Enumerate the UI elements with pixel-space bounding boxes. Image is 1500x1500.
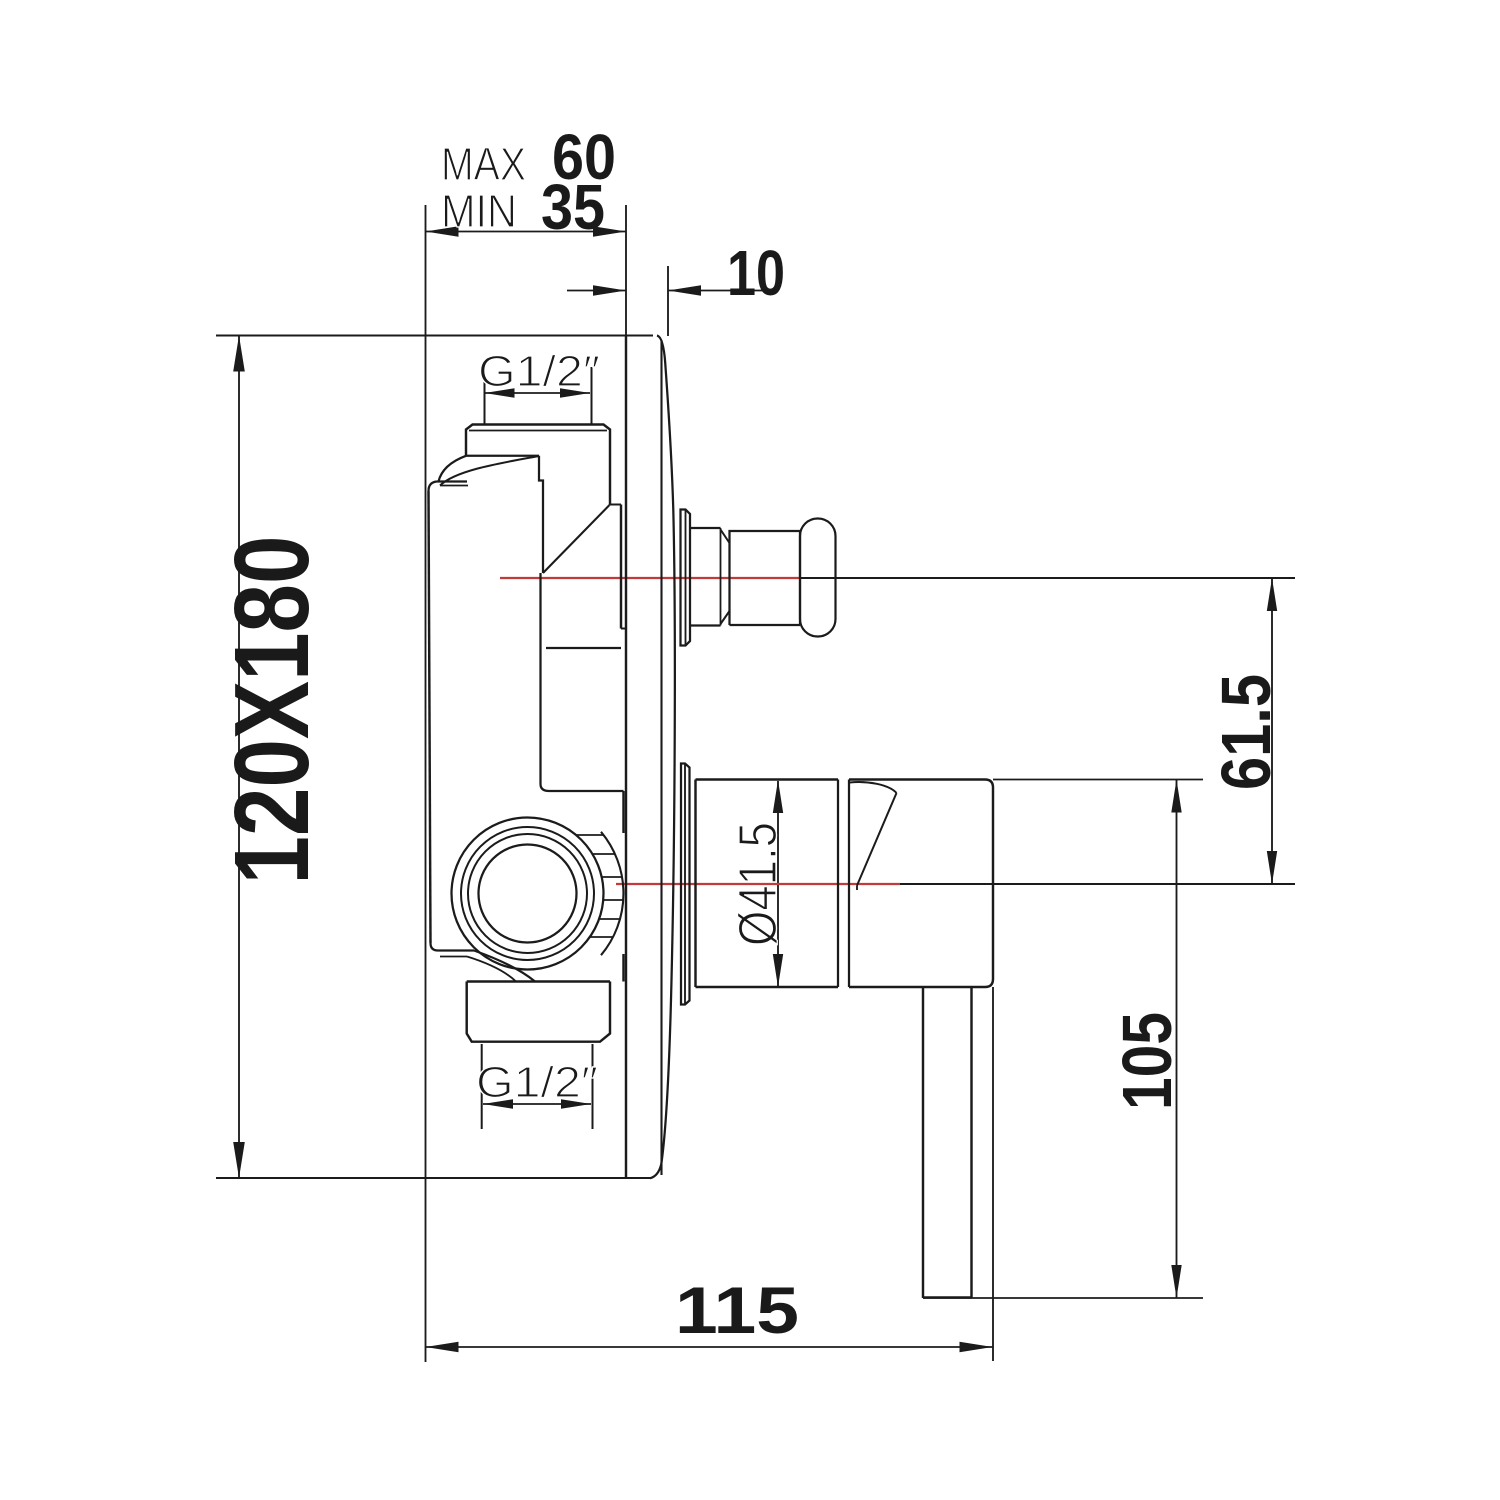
svg-text:Ø41.5: Ø41.5 bbox=[728, 822, 788, 946]
svg-text:61.5: 61.5 bbox=[1207, 674, 1285, 790]
svg-text:G1/2″: G1/2″ bbox=[476, 1058, 598, 1107]
svg-text:35: 35 bbox=[541, 171, 605, 243]
svg-text:105: 105 bbox=[1108, 1012, 1186, 1110]
svg-text:10: 10 bbox=[727, 237, 785, 309]
svg-text:120X180: 120X180 bbox=[213, 536, 331, 885]
svg-text:MIN: MIN bbox=[441, 185, 517, 237]
svg-text:MAX: MAX bbox=[441, 138, 526, 190]
svg-text:G1/2″: G1/2″ bbox=[478, 347, 600, 396]
svg-text:115: 115 bbox=[675, 1273, 799, 1347]
